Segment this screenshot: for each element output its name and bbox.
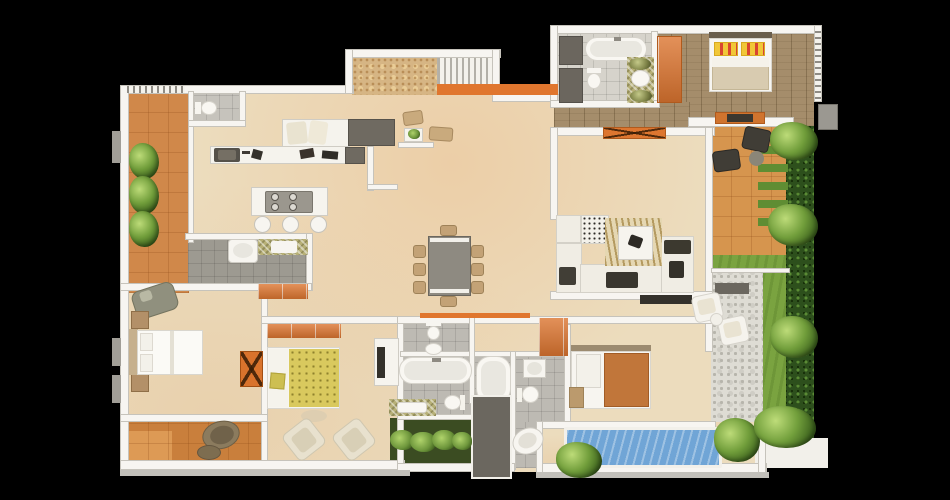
utility-cabinet xyxy=(258,284,308,299)
sofa-side-item xyxy=(669,261,684,278)
dining-chair-l3 xyxy=(413,281,426,294)
wall-kitchen-stub xyxy=(367,184,398,190)
passage-plant-3 xyxy=(129,211,159,247)
wall-garden-step xyxy=(711,268,790,273)
island-stool-3 xyxy=(310,216,327,233)
hedge-tree-1 xyxy=(770,122,818,160)
master-pillow-1 xyxy=(140,333,153,351)
foyer-chair-1 xyxy=(402,110,424,127)
daybed-cushion-1 xyxy=(286,121,308,145)
wall-top-right-top xyxy=(550,25,822,34)
dining-table-end-bottom xyxy=(430,289,469,293)
wall-entry-top xyxy=(345,49,501,58)
dining-chair-l1 xyxy=(413,245,426,258)
ybed-wardrobe xyxy=(267,324,341,338)
wall-top-right-left xyxy=(550,25,558,108)
bath-tr-cabinet-1 xyxy=(559,36,583,65)
bath-tr-cabinet-2 xyxy=(559,68,583,103)
service-shaft xyxy=(471,395,512,479)
ac-unit xyxy=(818,104,838,130)
utility-sink xyxy=(271,241,297,253)
wall-bath-tl-bottom xyxy=(188,120,246,127)
dining-chair-r2 xyxy=(471,263,484,276)
passage-plant-1 xyxy=(129,143,159,179)
sofa-cushion-dark-1 xyxy=(559,267,576,285)
hedge-tree-2 xyxy=(768,204,818,246)
kitchen-item-dish xyxy=(322,150,339,159)
bath-main-basin xyxy=(397,402,427,413)
wall-passage-right xyxy=(188,91,194,243)
hedge-tree-3 xyxy=(770,316,818,358)
dining-table xyxy=(428,236,471,296)
terrace-chair-2 xyxy=(712,148,742,173)
railing-top-right xyxy=(815,31,821,99)
console-orange-dining xyxy=(420,313,530,318)
planter-ledge-orange xyxy=(437,84,558,95)
passage-plant-2 xyxy=(129,176,159,214)
orange-wardrobe-sbed xyxy=(539,318,568,356)
hall-bench-orange xyxy=(603,127,666,139)
sbed-blanket xyxy=(604,353,649,407)
garden-bush xyxy=(754,406,816,448)
dining-chair-l2 xyxy=(413,263,426,276)
dining-chair-top xyxy=(440,225,457,236)
bath-right-toilet-bowl xyxy=(522,386,539,403)
hedge-right xyxy=(786,126,814,446)
kitchen-fridge xyxy=(348,119,395,146)
bed-tr-pillow-1 xyxy=(714,42,738,56)
sofa-cushion-dark-2 xyxy=(606,272,638,288)
burner-1 xyxy=(271,193,279,201)
vanity-plant-2 xyxy=(630,90,652,102)
wc-toilet-bowl xyxy=(427,326,440,340)
burner-4 xyxy=(289,203,297,211)
sbed-bench xyxy=(569,387,584,408)
wall-ybed-top xyxy=(261,316,404,324)
ybed-pillow xyxy=(269,372,285,389)
bathtub-tr-faucet xyxy=(614,37,621,41)
planter-shrub-4 xyxy=(452,432,472,450)
exterior-ledge-3 xyxy=(112,375,121,403)
bathtub-tr-inner xyxy=(590,41,642,57)
bath-main-toilet-bowl xyxy=(444,395,461,410)
floor-plan xyxy=(0,0,950,500)
wall-bottom-left xyxy=(120,460,405,470)
burner-2 xyxy=(289,193,297,201)
sofa-corner-unit xyxy=(556,215,581,243)
bathtub-main-inner xyxy=(404,361,467,380)
wc-basin xyxy=(425,343,442,355)
dining-chair-r3 xyxy=(471,281,484,294)
base-shadow-left xyxy=(120,470,410,476)
sofa-cushion-dark-3 xyxy=(664,240,691,254)
kitchen-faucet xyxy=(242,151,250,154)
garden-side-table xyxy=(710,313,723,326)
utility-basin-bowl xyxy=(233,243,253,258)
master-wardrobe xyxy=(240,351,263,387)
foyer-plant xyxy=(408,129,420,139)
ybed-tv xyxy=(377,347,385,378)
island-stool-1 xyxy=(254,216,271,233)
foyer-chair-2 xyxy=(429,126,454,142)
floor-entry-cork xyxy=(352,57,437,95)
toilet-top-left-bowl xyxy=(201,101,217,115)
toilet-tr-bowl xyxy=(587,73,601,89)
exterior-ledge-1 xyxy=(112,131,121,163)
wall-living-left xyxy=(550,127,558,220)
wardrobe-top-right xyxy=(657,36,682,103)
island-stool-2 xyxy=(282,216,299,233)
vanity-basin xyxy=(631,70,650,87)
dining-chair-bottom xyxy=(440,296,457,307)
terrace-side-table xyxy=(749,151,764,166)
master-nightstand-1 xyxy=(131,311,149,329)
wall-foyer-stub xyxy=(398,142,434,148)
wall-master-bottom xyxy=(120,414,268,422)
wall-entry-left xyxy=(345,49,353,94)
sbed-pillow xyxy=(576,354,601,388)
dining-chair-r1 xyxy=(471,245,484,258)
bathtub-main-faucet xyxy=(432,358,441,362)
staircase xyxy=(437,57,493,85)
bed-tr-pillow-2 xyxy=(741,42,765,56)
tv-console xyxy=(640,295,692,304)
kitchen-cabinet xyxy=(345,147,365,164)
master-duvet-fold xyxy=(170,331,174,374)
exterior-ledge-2 xyxy=(112,338,121,366)
terrace-green-strip-3 xyxy=(758,182,788,190)
terrace-green-strip-2 xyxy=(758,164,788,172)
kitchen-sink-bowl xyxy=(218,150,236,160)
bath-right-basin-bowl xyxy=(527,362,542,375)
daybed-cushion-2 xyxy=(307,120,328,145)
bed-tr-sheet xyxy=(712,58,769,67)
ybed-duvet xyxy=(289,349,339,407)
dining-table-end-top xyxy=(430,238,469,242)
wall-bath-v1 xyxy=(469,316,475,404)
master-pillow-2 xyxy=(140,354,153,372)
master-nightstand-2 xyxy=(131,374,149,392)
garden-door-mat xyxy=(715,283,749,294)
pool-plant-left xyxy=(556,442,602,478)
railing-top-left xyxy=(127,86,185,93)
burner-3 xyxy=(271,203,279,211)
bathtub-vertical-inner xyxy=(481,361,506,398)
patio-pouf xyxy=(197,445,221,460)
vanity-plant-1 xyxy=(629,58,651,70)
bed-tr-bench-top xyxy=(727,114,753,122)
